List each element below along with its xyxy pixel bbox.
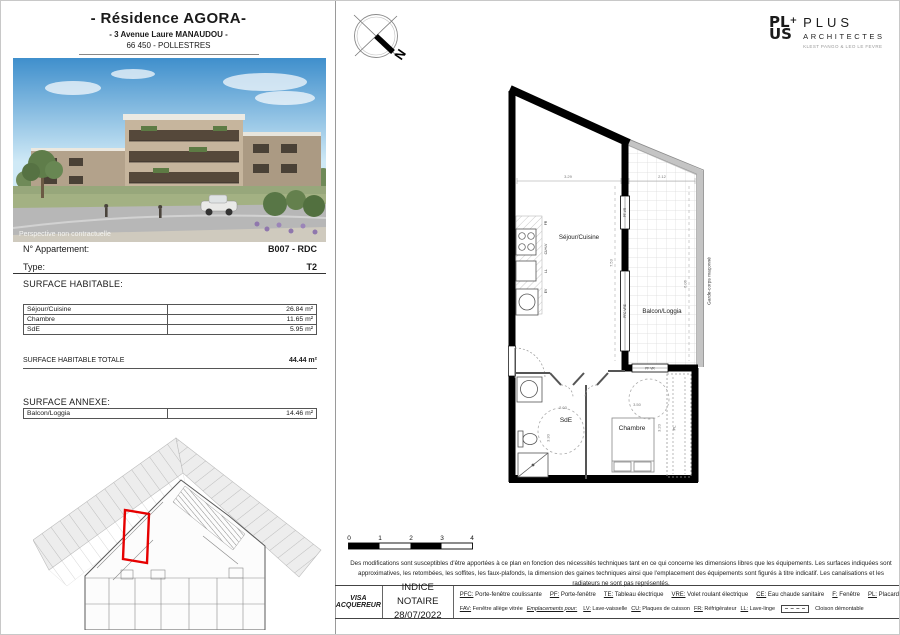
door-swings	[561, 385, 597, 397]
svg-text:3.50: 3.50	[633, 402, 642, 407]
legend-item: LL: Lave-linge	[740, 606, 775, 612]
logo-tagline: KLEST PANGO & LEO LE FEVRE	[803, 44, 885, 49]
legend-cell: PFC: Porte-fenêtre coulissante PF: Porte…	[453, 586, 899, 618]
svg-text:6.06: 6.06	[682, 279, 687, 288]
room-label: Séjour/Cuisine	[24, 305, 168, 315]
architect-logo: PL+ US PLUS ARCHITECTES KLEST PANGO & LE…	[769, 15, 885, 49]
residence-city: 66 450 - POLLESTRES	[1, 41, 336, 50]
room-area: 26.84 m²	[167, 305, 316, 315]
room-label-balcon: Balcon/Loggia	[642, 308, 682, 315]
legend-item: TE: Tableau électrique	[604, 592, 664, 598]
legend-row-2: FAV: Fenêtre allège vitrée Emplacements …	[460, 605, 864, 613]
cloison-demontable-label: Cloison démontable	[815, 606, 864, 612]
balcony	[627, 139, 704, 368]
legend-item: FR: Réfrigérateur	[694, 606, 737, 612]
divider-rule	[13, 273, 326, 274]
legend-item: FAV: Fenêtre allège vitrée	[460, 606, 523, 612]
sde-fixtures	[517, 377, 584, 477]
svg-text:3: 3	[440, 535, 444, 542]
footer-strip: VISA ACQUEREUR INDICE NOTAIRE 28/07/2022…	[335, 585, 899, 619]
indice-notaire-label: INDICE NOTAIRE	[383, 581, 453, 609]
svg-text:3.29: 3.29	[564, 174, 573, 179]
kitchen-area: FR CU+LV LL EV	[516, 216, 548, 315]
residence-title: - Résidence AGORA-	[1, 10, 336, 27]
title-underline	[79, 53, 259, 55]
visa-acquereur-label: VISA ACQUEREUR	[335, 595, 382, 609]
legend-emplacements-label: Emplacements pour:	[527, 606, 577, 612]
legend-item: PFC: Porte-fenêtre coulissante	[460, 592, 542, 598]
svg-text:2: 2	[409, 535, 413, 542]
window-label-pfc-vre: PFC VRE	[623, 304, 627, 318]
legend-item: CE: Eau chaude sanitaire	[756, 592, 824, 598]
residence-address: - 3 Avenue Laure MANAUDOU -	[1, 30, 336, 39]
indice-notaire-cell: INDICE NOTAIRE 28/07/2022	[382, 586, 453, 618]
cloison-demontable-symbol	[781, 605, 809, 613]
annexe-area: 14.46 m²	[167, 409, 316, 419]
placard-label: PL	[671, 425, 676, 431]
site-plan	[33, 428, 323, 630]
svg-text:CU+LV: CU+LV	[544, 243, 548, 255]
garde-corps-label: Garde-corps maçonné	[707, 257, 713, 305]
kitchen-labels: FR CU+LV LL EV	[544, 220, 548, 293]
window-label-pf-vr: PF VR	[623, 207, 627, 217]
table-row: Balcon/Loggia 14.46 m²	[24, 409, 317, 419]
plan-sheet: - Résidence AGORA- - 3 Avenue Laure MANA…	[0, 0, 900, 635]
logo-name: PLUS	[803, 15, 885, 30]
svg-text:0: 0	[347, 535, 351, 542]
table-row: SdE 5.95 m²	[24, 325, 317, 335]
room-label-chambre: Chambre	[619, 425, 646, 432]
legend-row-1: PFC: Porte-fenêtre coulissante PF: Porte…	[460, 592, 899, 598]
annexe-label: Balcon/Loggia	[24, 409, 168, 419]
column-divider	[335, 1, 336, 635]
north-compass-icon: N	[342, 5, 412, 69]
scale-bar: 0 1 2 3 4	[345, 533, 475, 555]
apartment-type-label: Type:	[23, 262, 45, 272]
svg-text:LL: LL	[544, 269, 548, 273]
apartment-type-value: T2	[306, 262, 317, 272]
room-label-sejour: Séjour/Cuisine	[559, 234, 600, 241]
legend-item: VRE: Volet roulant électrique	[671, 592, 748, 598]
svg-text:3.30: 3.30	[545, 433, 550, 442]
room-label: SdE	[24, 325, 168, 335]
logo-monogram: PL+ US	[769, 15, 797, 49]
surface-annexe-table: Balcon/Loggia 14.46 m²	[23, 408, 317, 419]
logo-monogram-bottom: US	[769, 28, 797, 40]
apartment-type-row: Type: T2	[23, 262, 317, 272]
surface-totale-row: SURFACE HABITABLE TOTALE 44.44 m²	[23, 357, 317, 369]
window-label-chambre: PF VR	[645, 366, 655, 370]
scale-ticks: 0 1 2 3 4	[347, 535, 474, 542]
svg-text:FR: FR	[544, 220, 548, 225]
legend-item: CU: Plaques de cuisson	[631, 606, 690, 612]
apartment-number-value: B007 - RDC	[268, 244, 317, 254]
building-perspective-image: Perspective non contractuelle	[13, 58, 326, 242]
svg-text:2.03: 2.03	[559, 405, 568, 410]
table-row: Séjour/Cuisine 26.84 m²	[24, 305, 317, 315]
title-block: - Résidence AGORA- - 3 Avenue Laure MANA…	[1, 10, 336, 55]
svg-text:2.12: 2.12	[658, 174, 667, 179]
svg-text:4: 4	[470, 535, 474, 542]
svg-text:3.20: 3.20	[656, 423, 661, 432]
photo-caption: Perspective non contractuelle	[19, 231, 111, 238]
legend-item: PL: Placard	[868, 592, 899, 598]
svg-text:1: 1	[378, 535, 382, 542]
indice-notaire-date: 28/07/2022	[394, 609, 442, 623]
room-area: 5.95 m²	[167, 325, 316, 335]
room-label: Chambre	[24, 315, 168, 325]
room-area: 11.65 m²	[167, 315, 316, 325]
surface-habitable-heading: SURFACE HABITABLE:	[23, 279, 123, 289]
surface-habitable-table: Séjour/Cuisine 26.84 m² Chambre 11.65 m²…	[23, 304, 317, 335]
room-label-sde: SdE	[560, 417, 573, 424]
logo-subtitle: ARCHITECTES	[803, 32, 885, 41]
logo-wordmark: PLUS ARCHITECTES KLEST PANGO & LEO LE FE…	[803, 15, 885, 49]
floor-plan: PF VR PFC VRE PF VR FR	[499, 79, 717, 494]
north-label: N	[391, 46, 409, 62]
apartment-number-row: N° Appartement: B007 - RDC	[23, 244, 317, 254]
legend-item: F: Fenêtre	[832, 592, 860, 598]
legend-item: LV: Lave-vaisselle	[583, 606, 627, 612]
apartment-number-label: N° Appartement:	[23, 244, 89, 254]
table-row: Chambre 11.65 m²	[24, 315, 317, 325]
surface-annexe-heading: SURFACE ANNEXE:	[23, 397, 110, 407]
svg-text:EV: EV	[544, 288, 548, 293]
surface-totale-value: 44.44 m²	[289, 357, 317, 364]
svg-text:7.53: 7.53	[608, 258, 613, 267]
legend-item: PF: Porte-fenêtre	[550, 592, 596, 598]
surface-totale-label: SURFACE HABITABLE TOTALE	[23, 357, 124, 364]
visa-acquereur-cell: VISA ACQUEREUR	[335, 586, 382, 618]
